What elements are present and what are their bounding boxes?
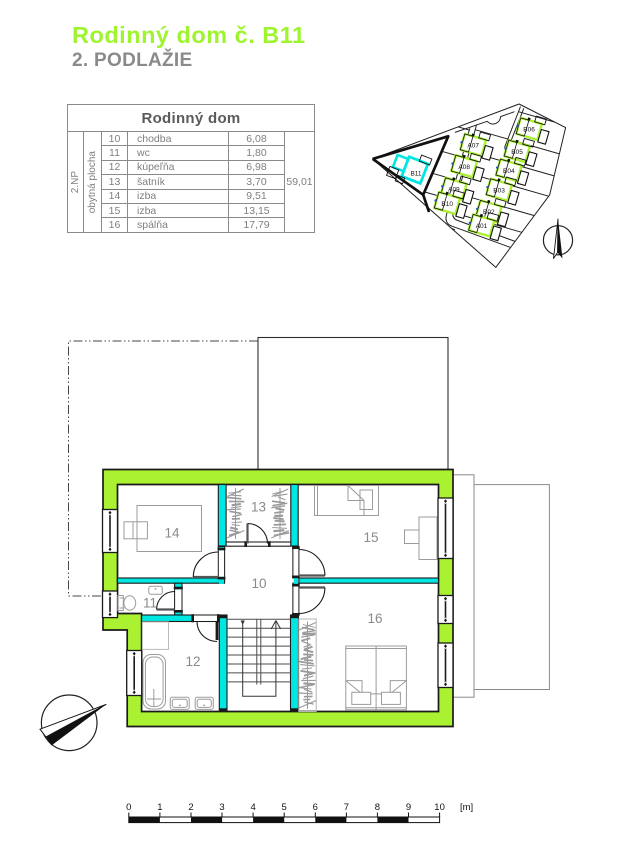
svg-text:B04: B04 bbox=[503, 168, 515, 175]
svg-text:B05: B05 bbox=[511, 149, 523, 156]
svg-text:5: 5 bbox=[282, 802, 287, 813]
svg-text:3: 3 bbox=[219, 802, 224, 813]
svg-text:7: 7 bbox=[344, 802, 349, 813]
svg-text:0: 0 bbox=[126, 802, 131, 813]
svg-text:8: 8 bbox=[375, 802, 380, 813]
svg-text:16: 16 bbox=[367, 611, 382, 626]
svg-text:4: 4 bbox=[250, 802, 255, 813]
svg-text:A01: A01 bbox=[476, 223, 488, 230]
svg-text:B11: B11 bbox=[410, 171, 421, 178]
svg-text:A07: A07 bbox=[467, 143, 479, 150]
svg-text:10: 10 bbox=[434, 802, 445, 813]
svg-text:9: 9 bbox=[406, 802, 411, 813]
svg-text:15: 15 bbox=[363, 530, 378, 545]
svg-text:12: 12 bbox=[185, 654, 200, 669]
svg-text:B06: B06 bbox=[523, 127, 535, 134]
svg-text:14: 14 bbox=[164, 526, 180, 541]
svg-text:[m]: [m] bbox=[460, 802, 473, 813]
svg-text:B03: B03 bbox=[493, 188, 505, 195]
svg-text:6: 6 bbox=[313, 802, 318, 813]
svg-text:A08: A08 bbox=[458, 164, 470, 171]
svg-text:1: 1 bbox=[157, 802, 162, 813]
svg-text:13: 13 bbox=[251, 500, 266, 515]
svg-text:10: 10 bbox=[251, 576, 266, 591]
svg-text:B10: B10 bbox=[441, 201, 453, 208]
svg-text:2: 2 bbox=[188, 802, 193, 813]
svg-text:11: 11 bbox=[143, 596, 157, 611]
